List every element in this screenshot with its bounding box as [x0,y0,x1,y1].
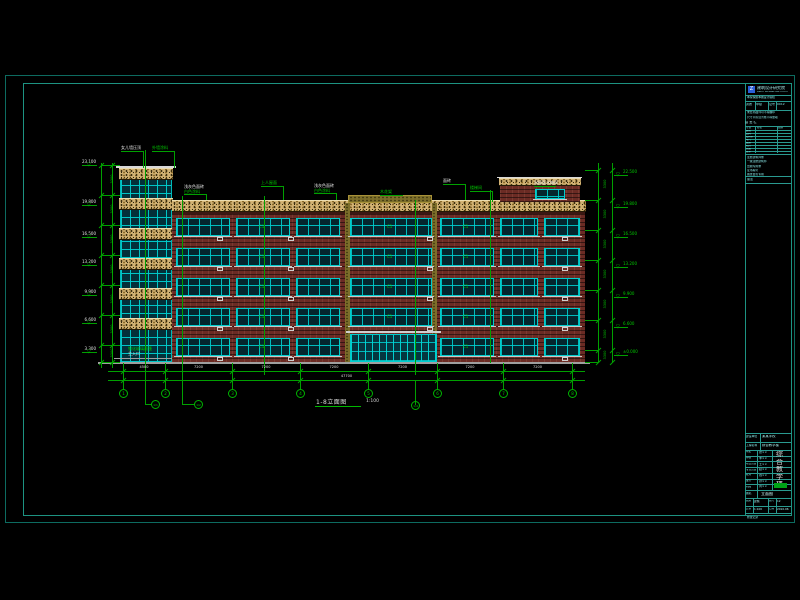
window-sill [234,266,292,267]
callout-underline [380,195,402,196]
titleblock-line [745,126,791,127]
meta-value: 建施 [754,500,760,503]
drawing-name-value: 立面图 [761,492,773,496]
ac-unit-mark [427,297,433,301]
titleblock-line [745,479,791,480]
left-dim-text: 3300 [110,261,114,277]
extra-label: 备注 [747,178,753,181]
titleblock-line [745,142,791,143]
dim-text: 7200 [165,365,232,369]
window-sill [498,296,540,297]
dim-text: 7200 [503,365,572,369]
titleblock-line [745,473,791,474]
sub-grid-leader [182,381,183,404]
staff-role: 设计 [746,480,751,483]
floor-connector-line [585,320,598,321]
ac-unit-mark [427,237,433,241]
tower-stone-band [119,228,173,240]
elevation-marker-text: 13.200 [623,261,637,266]
floor-connector-line [101,362,120,363]
callout-underline [152,151,174,152]
dimension-line [108,380,585,381]
right-dim-text: 3300 [603,266,607,282]
window [544,218,580,236]
window-sill [348,266,434,267]
titleblock-line [745,139,791,140]
grid-bubble: 2 [161,389,170,398]
window-sill [498,236,540,237]
ac-unit-mark [562,267,568,271]
axis-through-line [182,196,183,380]
left-dim-text: 3300 [110,321,114,337]
titleblock-note: 未经书面许可不得翻印 [747,111,775,114]
callout-underline [314,193,336,194]
staff-role: 制图 [746,486,751,489]
window-tag: C1 [463,344,468,349]
titleblock-line [745,513,791,514]
elevation-marker-triangle-icon: ▽ [87,321,91,326]
grid-bubble: 5 [364,389,373,398]
grid-bubble: 1/4 [411,401,420,410]
ac-unit-mark [427,267,433,271]
floor-connector-line [585,290,598,291]
floor-connector-line [101,225,120,226]
company-logo-icon: Z [748,86,755,93]
meta-label: 图别 [746,500,751,503]
sub-grid-leader [182,404,194,405]
window [176,248,230,266]
window-tag: C1 [387,254,392,259]
tower-stone-band [119,288,173,300]
staff-name: 赵×× [759,468,767,471]
meta-label: 日期 [769,508,774,511]
titleblock-line [745,450,791,451]
window-sill [498,266,540,267]
approved-stamp-cell [774,483,787,488]
grid-bubble: 1/1 [151,400,160,409]
titleblock-line [745,183,791,184]
callout-leader [336,193,337,200]
stamp-text: 出图专用章 [747,165,761,168]
penthouse-window-sill [533,199,567,200]
elevation-marker-line [614,175,628,176]
right-dim-text: 3300 [603,236,607,252]
right-dim-text: 3300 [603,347,607,363]
axis-through-line [490,190,491,363]
dimension-line [108,371,585,372]
meta-label: 比例 [746,508,751,511]
owner-label: 建设单位 [746,435,757,438]
window-sill [438,356,496,357]
callout-leader [143,151,144,168]
dim-text: 7200 [437,365,503,369]
callout-leader [402,195,403,196]
elevation-marker-line [614,355,628,356]
grid-bubble: 3 [228,389,237,398]
company-name: 建筑设计研究院 [757,86,785,90]
floor-connector-line [101,255,120,256]
meta-value: 2010.06 [777,508,789,511]
window [176,308,230,326]
window [500,338,538,356]
elevation-marker-triangle-icon: ▽ [87,350,91,355]
window-sill [438,296,496,297]
drawing-title-underline [315,406,361,407]
window-tag: C1 [463,284,468,289]
floor-connector-line [585,260,598,261]
floor-connector-line [585,200,598,201]
ac-unit-mark [217,237,223,241]
callout-leader [206,194,207,200]
cert-cell: 0012 [777,103,791,106]
dim-text: 4500 [123,365,165,369]
company-subtitle: ARCH DESIGN INSTITUTE [757,91,788,94]
ac-unit-mark [217,357,223,361]
titleblock-line [745,154,791,155]
staff-name: 王×× [759,463,767,466]
penthouse-window [535,189,565,199]
floor-connector-line [585,350,598,351]
floor-connector-line [585,362,598,363]
project-name-vertical: 合 [776,459,783,467]
ac-unit-mark [217,267,223,271]
titleblock-line [745,148,791,149]
window [296,308,340,326]
callout-underline [261,186,283,187]
cad-canvas[interactable]: C1C1C1C1C1C1C1C1C1C1C1C1C1C1330033003300… [0,0,800,600]
window-sill [294,326,342,327]
window-tag: C1 [463,224,468,229]
tower-cap-line [116,166,176,168]
tower-stone-band [119,198,173,210]
right-dim-chain-line [598,163,599,363]
right-dim-chain-line [612,163,613,363]
elevation-marker-text: 16.500 [623,231,637,236]
floor-connector-line [101,315,120,316]
elevation-marker-text: 9.900 [623,291,634,296]
callout-leader [174,151,175,168]
overall-dim-text: 47700 [108,374,585,378]
ac-unit-mark [288,297,294,301]
tower-stone-band [119,168,173,180]
window [296,218,340,236]
window-sill [234,326,292,327]
titleblock-line [745,151,791,152]
callout-leader [465,184,466,200]
owner-value: 某某学校 [762,435,776,439]
window [544,248,580,266]
callout-underline [443,184,465,185]
sign-table-title: 会 签 栏 [745,121,791,125]
left-dim-text: 3300 [110,201,114,217]
grid-bubble: 4 [296,389,305,398]
entrance-canopy-line [346,331,441,333]
window [544,278,580,296]
ac-unit-mark [217,327,223,331]
window-sill [498,326,540,327]
staff-name: 张×× [759,451,767,454]
window-tag: C1 [387,224,392,229]
floor-connector-line [101,165,120,166]
drawing-scale: 1:100 [366,399,379,404]
window-sill [294,296,342,297]
tower-stone-band [119,258,173,270]
stamp-text: 注册建筑师章 [747,156,764,159]
callout-underline [121,151,143,152]
elevation-marker-triangle-icon: ▽ [87,263,91,268]
window-sill [438,236,496,237]
window [500,248,538,266]
window-sill [348,236,434,237]
window-tag: C1 [387,284,392,289]
staff-name: 周×× [759,485,767,488]
elevation-marker-line [614,267,628,268]
elevation-marker-line [614,207,628,208]
sub-grid-leader [145,381,146,404]
project-value: 综合教学楼 [762,444,779,448]
cert-cell: 资质 [746,103,755,106]
staff-role: 校对 [746,474,751,477]
window [544,308,580,326]
dim-text: 7200 [232,365,300,369]
right-dim-text: 3300 [603,326,607,342]
window [296,248,340,266]
window-sill [438,326,496,327]
window-sill [234,236,292,237]
grid-bubble: 7 [499,389,508,398]
footer-note: 修改记录 [747,516,758,519]
parapet-cornice [172,212,585,214]
project-name-vertical: 学 [776,474,783,482]
left-dim-text: 3300 [110,231,114,247]
elevation-marker-text: 6.600 [623,321,634,326]
elevation-marker-line [614,297,628,298]
floor-connector-line [585,230,598,231]
floor-connector-line [101,285,120,286]
window [176,278,230,296]
meta-value: 12 [777,500,781,503]
window [296,278,340,296]
window-sill [348,326,434,327]
right-dim-text: 3300 [603,176,607,192]
project-name-vertical: 教 [776,466,783,474]
entrance-storefront [350,334,437,362]
ground-line [98,362,590,364]
window [176,218,230,236]
project-label: 工程名称 [746,444,757,447]
titleblock-note: 本院保留本图设计版权 [747,96,775,99]
window [500,278,538,296]
drawing-title: 1-8立面图 [316,397,347,406]
meta-label: 图号 [769,500,774,503]
floor-connector-line [585,170,598,171]
window-tag: C1 [463,254,468,259]
ac-unit-mark [562,297,568,301]
titleblock-line [757,490,758,498]
elevation-marker-line [614,327,628,328]
tower-stone-band [119,318,173,330]
grid-bubble: 6 [433,389,442,398]
right-dim-text: 3300 [603,206,607,222]
callout-leader [283,186,284,200]
staff-name: 钱×× [759,474,767,477]
axis-through-line [264,196,265,375]
window-sill [234,296,292,297]
drawing-name-label: 图名 [746,492,752,495]
ac-unit-mark [288,267,294,271]
meta-value: 1:100 [754,508,762,511]
grid-bubble: 1/2 [194,400,203,409]
window-sill [348,296,434,297]
project-name-vertical: 综 [776,451,783,459]
staff-role: 审核 [746,457,751,460]
window-sill [294,356,342,357]
left-dim-text: 3300 [110,345,114,361]
ac-unit-mark [562,357,568,361]
ac-unit-mark [288,237,294,241]
titleblock-line [745,456,791,457]
titleblock-line [745,133,791,134]
titleblock-line [745,145,791,146]
grid-bubble: 1 [119,389,128,398]
window [544,338,580,356]
elevation-marker-text: ±0.000 [623,349,638,354]
ac-unit-mark [288,357,294,361]
staff-role: 审定 [746,451,751,454]
staff-role: 项目负责 [746,463,756,466]
window-sill [498,356,540,357]
ac-unit-mark [288,327,294,331]
titleblock-note: 尺寸以标注为准不得量取 [747,116,778,119]
callout-leader [492,191,493,202]
staff-role: 专业负责 [746,469,756,472]
window-sill [294,236,342,237]
floor-connector-line [101,195,120,196]
ac-unit-mark [562,237,568,241]
window [296,338,340,356]
staff-name: 李×× [759,457,767,460]
dim-text: 7200 [368,365,437,369]
callout-underline [184,194,206,195]
window-tag: C1 [463,314,468,319]
elevation-marker-triangle-icon: ▽ [87,203,91,208]
window-sill [294,266,342,267]
right-dim-text: 3300 [603,296,607,312]
elevation-marker-triangle-icon: ▽ [87,235,91,240]
axis-through-line [415,200,416,375]
elevation-marker-line [614,237,628,238]
left-dim-text: 3300 [110,171,114,187]
window-sill [438,266,496,267]
window [176,338,230,356]
stamp-text: 证书编号 [747,169,758,172]
cert-cell: 证号 [769,103,776,106]
elevation-marker-text: 19.800 [623,201,637,206]
ac-unit-mark [562,327,568,331]
window [500,218,538,236]
cert-cell: 甲级 [756,103,768,106]
callout-underline [470,191,492,192]
elevation-marker-triangle-icon: ▽ [87,293,91,298]
stamp-text: 一级注册建筑师 [747,160,767,163]
elevation-marker-text: 22.500 [623,169,637,174]
grid-bubble: 8 [568,389,577,398]
dim-text: 7200 [300,365,368,369]
window-tag: C1 [387,314,392,319]
callout-text: 主入口 [128,351,140,357]
central-canopy-strip [348,195,432,203]
left-dim-text: 3300 [110,291,114,307]
titleblock-line [745,130,791,131]
staff-name: 孙×× [759,480,767,483]
ac-unit-mark [217,297,223,301]
window [500,308,538,326]
elevation-marker-triangle-icon: ▽ [87,163,91,168]
callout-underline [534,186,556,187]
window-sill [234,356,292,357]
